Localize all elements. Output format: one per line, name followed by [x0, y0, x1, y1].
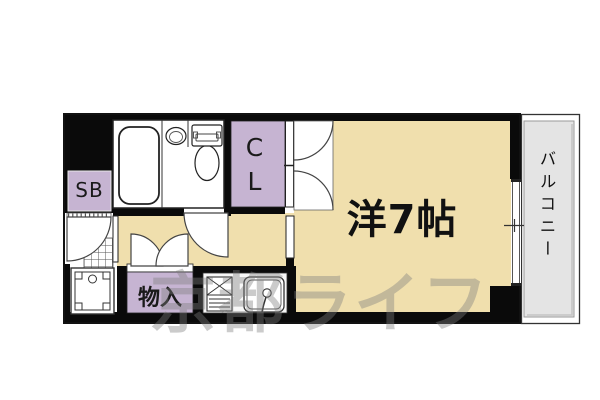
- gas-stove: [207, 277, 232, 311]
- shoe-box-label: SB: [68, 178, 111, 202]
- storage-label: 物入: [126, 280, 194, 312]
- wash-basin: [166, 128, 186, 145]
- room-label: 洋7帖: [322, 187, 482, 245]
- sliding-window: [511, 179, 521, 286]
- floor-plan-canvas: 洋7帖 CL SB 物入 バルコニー 京都ライフ: [0, 0, 600, 400]
- bathtub: [119, 127, 159, 204]
- closet-label: CL: [240, 133, 269, 203]
- balcony-label: バルコニー: [534, 150, 558, 300]
- kitchen-sink: [244, 277, 284, 312]
- washing-machine-pan: [71, 268, 114, 314]
